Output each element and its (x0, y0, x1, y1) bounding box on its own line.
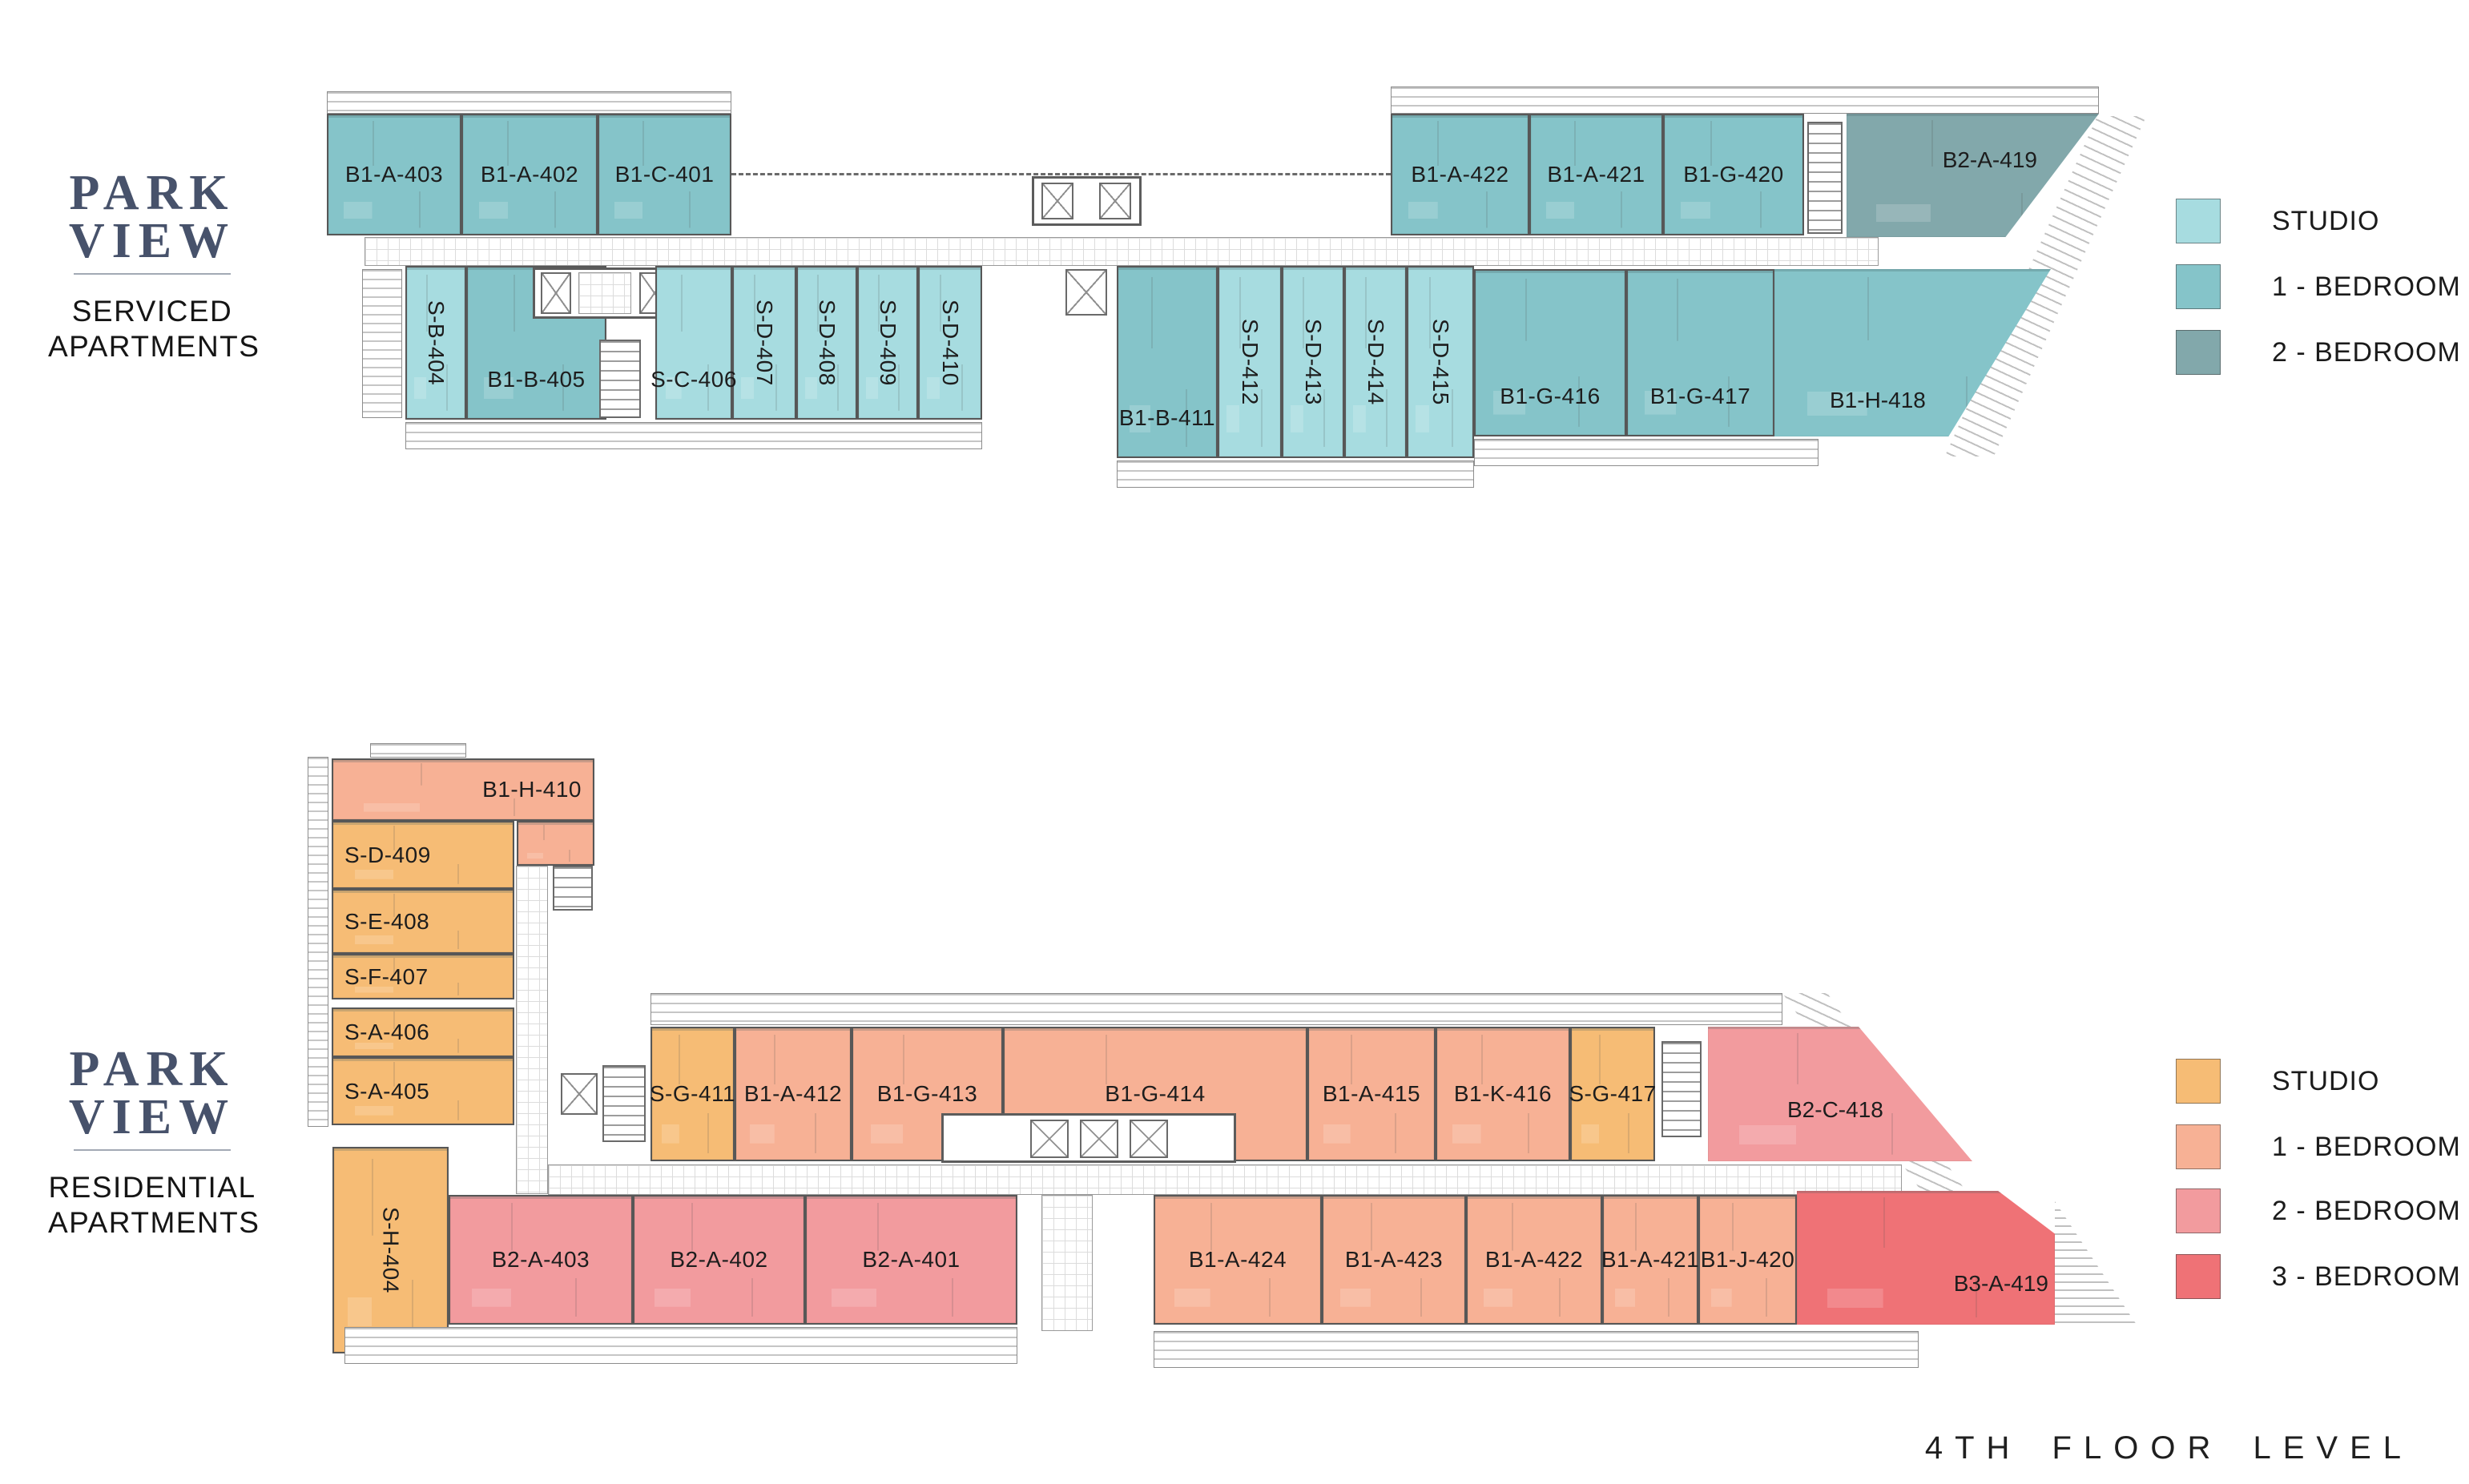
legend-1bed-residential: 1 - BEDROOM (2176, 1124, 2461, 1169)
terrace-hatch (2055, 1201, 2137, 1325)
elevator-icon (1080, 1120, 1118, 1158)
unit-s-a-405: S-A-405 (332, 1057, 514, 1125)
balcony-band (1154, 1331, 1919, 1368)
louver-band (308, 757, 328, 1127)
logo-underline (74, 1149, 231, 1151)
legend-2bed-residential: 2 - BEDROOM (2176, 1188, 2461, 1233)
unit-s-g-417: S-G-417 (1570, 1027, 1655, 1161)
legend-label-studio: STUDIO (2272, 1066, 2379, 1097)
residential-title-line1: RESIDENTIAL (48, 1170, 256, 1205)
unit-b1-k-416: B1-K-416 (1436, 1027, 1570, 1161)
unit-s-h-404: S-H-404 (332, 1147, 449, 1353)
unit-b1-a-423: B1-A-423 (1322, 1195, 1466, 1325)
floor-plan-sheet: PARK VIEW SERVICED APARTMENTS B1-A-403 B… (0, 0, 2469, 1484)
legend-label-1-bedroom: 1 - BEDROOM (2272, 1132, 2461, 1163)
residential-title-line2: APARTMENTS (48, 1205, 256, 1241)
logo-view: VIEW (48, 1094, 256, 1142)
corridor (1041, 1195, 1093, 1331)
unit-b1-a-422-res: B1-A-422 (1466, 1195, 1602, 1325)
park-view-logo-residential: PARK VIEW RESIDENTIAL APARTMENTS (48, 1046, 256, 1241)
unit-s-e-408: S-E-408 (332, 889, 514, 954)
unit-b1-h-410: B1-H-410 (332, 758, 594, 821)
terrace-band (370, 743, 466, 758)
unit-s-a-406: S-A-406 (332, 1007, 514, 1057)
corridor (516, 866, 548, 1194)
stairs-icon (553, 866, 593, 911)
unit-b3-a-419: B3-A-419 (1797, 1191, 2055, 1325)
unit-b1-j-420: B1-J-420 (1698, 1195, 1797, 1325)
unit-b1-h-410-annex (517, 821, 594, 866)
balcony-band (344, 1327, 1017, 1364)
unit-b1-a-424: B1-A-424 (1154, 1195, 1322, 1325)
legend-swatch-1-bedroom (2176, 1124, 2221, 1169)
stairs-icon (1661, 1041, 1702, 1137)
unit-b2-c-418: B2-C-418 (1708, 1027, 1972, 1161)
legend-studio-residential: STUDIO (2176, 1059, 2379, 1104)
elevator-icon (1130, 1120, 1168, 1158)
corridor (548, 1164, 1902, 1195)
legend-label-2-bedroom: 2 - BEDROOM (2272, 1196, 2461, 1227)
terrace-band (650, 993, 1782, 1025)
unit-b1-a-412: B1-A-412 (735, 1027, 852, 1161)
logo-park: PARK (48, 1046, 256, 1094)
legend-label-3-bedroom: 3 - BEDROOM (2272, 1261, 2461, 1293)
unit-b1-a-421-res: B1-A-421 (1602, 1195, 1698, 1325)
unit-s-g-411: S-G-411 (650, 1027, 735, 1161)
elevator-icon (561, 1073, 598, 1115)
legend-swatch-3-bedroom (2176, 1254, 2221, 1299)
legend-swatch-2-bedroom (2176, 1188, 2221, 1233)
unit-s-f-407: S-F-407 (332, 954, 514, 999)
stairs-icon (602, 1065, 646, 1142)
unit-s-d-409-res: S-D-409 (332, 821, 514, 889)
residential-apartments-section: PARK VIEW RESIDENTIAL APARTMENTS B1-H-41… (0, 0, 2469, 1484)
elevator-icon (1030, 1120, 1069, 1158)
legend-swatch-studio (2176, 1059, 2221, 1104)
legend-3bed-residential: 3 - BEDROOM (2176, 1254, 2461, 1299)
unit-b2-a-403: B2-A-403 (449, 1195, 633, 1325)
unit-b1-a-415: B1-A-415 (1307, 1027, 1436, 1161)
floor-level-label: 4TH FLOOR LEVEL (1925, 1430, 2413, 1466)
unit-b2-a-402: B2-A-402 (633, 1195, 805, 1325)
unit-b2-a-401: B2-A-401 (805, 1195, 1017, 1325)
